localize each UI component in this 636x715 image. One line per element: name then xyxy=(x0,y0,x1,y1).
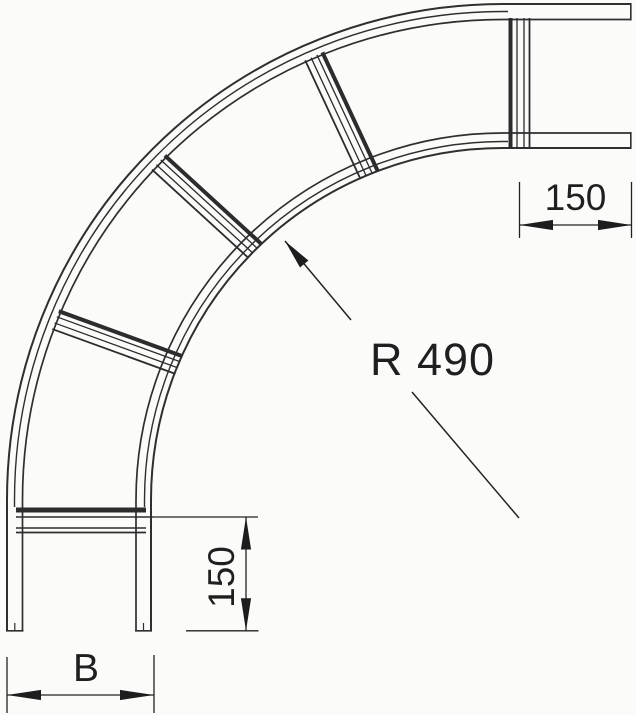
leader-line xyxy=(412,392,519,518)
arrowhead-left-icon xyxy=(520,220,554,230)
arrowhead-up-icon xyxy=(241,517,251,550)
rail-end-caps xyxy=(6,3,631,631)
radius-callout: R 490 xyxy=(285,241,519,518)
rung-arc-45deg xyxy=(152,156,261,259)
technical-drawing-canvas: 150 150 B R 490 xyxy=(0,0,636,715)
rung-bottom-end xyxy=(16,510,153,533)
outer-side-rail xyxy=(7,4,631,631)
arrowhead-down-icon xyxy=(241,598,251,631)
rung-top-end xyxy=(511,18,530,149)
dimension-width-b: B xyxy=(7,647,154,713)
arrowhead-left-icon xyxy=(7,690,41,700)
dimension-label-side-150: 150 xyxy=(201,546,242,608)
dimension-side-150: 150 xyxy=(152,517,259,631)
dimension-label-top-150: 150 xyxy=(545,177,607,218)
arrowhead-right-icon xyxy=(598,220,632,230)
dimension-label-width: B xyxy=(73,647,99,690)
arrowhead-right-icon xyxy=(120,690,154,700)
dimension-top-150: 150 xyxy=(520,177,632,238)
leader-arrowhead-icon xyxy=(285,241,308,268)
rung-arc-22deg xyxy=(305,52,378,179)
ladder-bend-drawing: 150 150 B R 490 xyxy=(0,0,636,715)
radius-label: R 490 xyxy=(370,334,495,385)
